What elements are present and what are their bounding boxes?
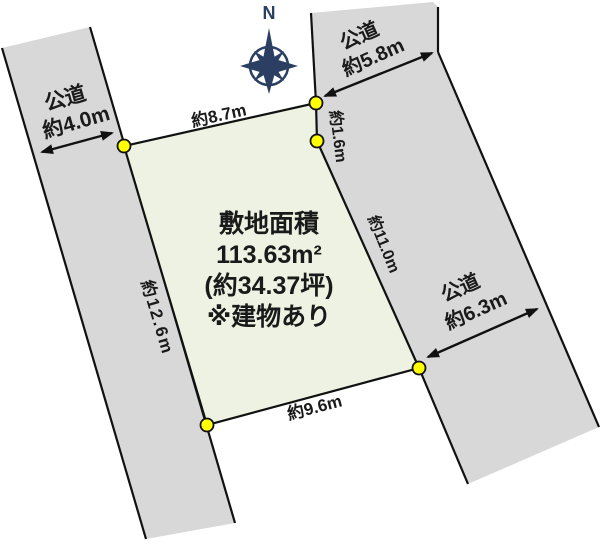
plot-survey-canvas: 公道 約4.0m 公道 約5.8m 公道 約6.3m 敷地面積 113.63m²… [0,0,600,544]
corner-dot-northwest [118,140,131,153]
parcel-building-note: ※建物あり [207,303,331,331]
corner-dot-northeast [311,135,324,148]
compass-north-label: N [263,3,276,23]
compass: N [240,3,298,94]
compass-rose-icon [240,28,298,94]
corner-dot-southeast [413,362,426,375]
parcel-area-title: 敷地面積 [219,209,319,238]
parcel-area-sqm: 113.63m² [216,241,322,269]
corner-dot-southwest [201,419,214,432]
parcel-area-tsubo: (約34.37坪) [204,271,333,300]
land-plot-diagram: 公道 約4.0m 公道 約5.8m 公道 約6.3m 敷地面積 113.63m²… [0,0,600,544]
corner-dot-north [310,97,323,110]
